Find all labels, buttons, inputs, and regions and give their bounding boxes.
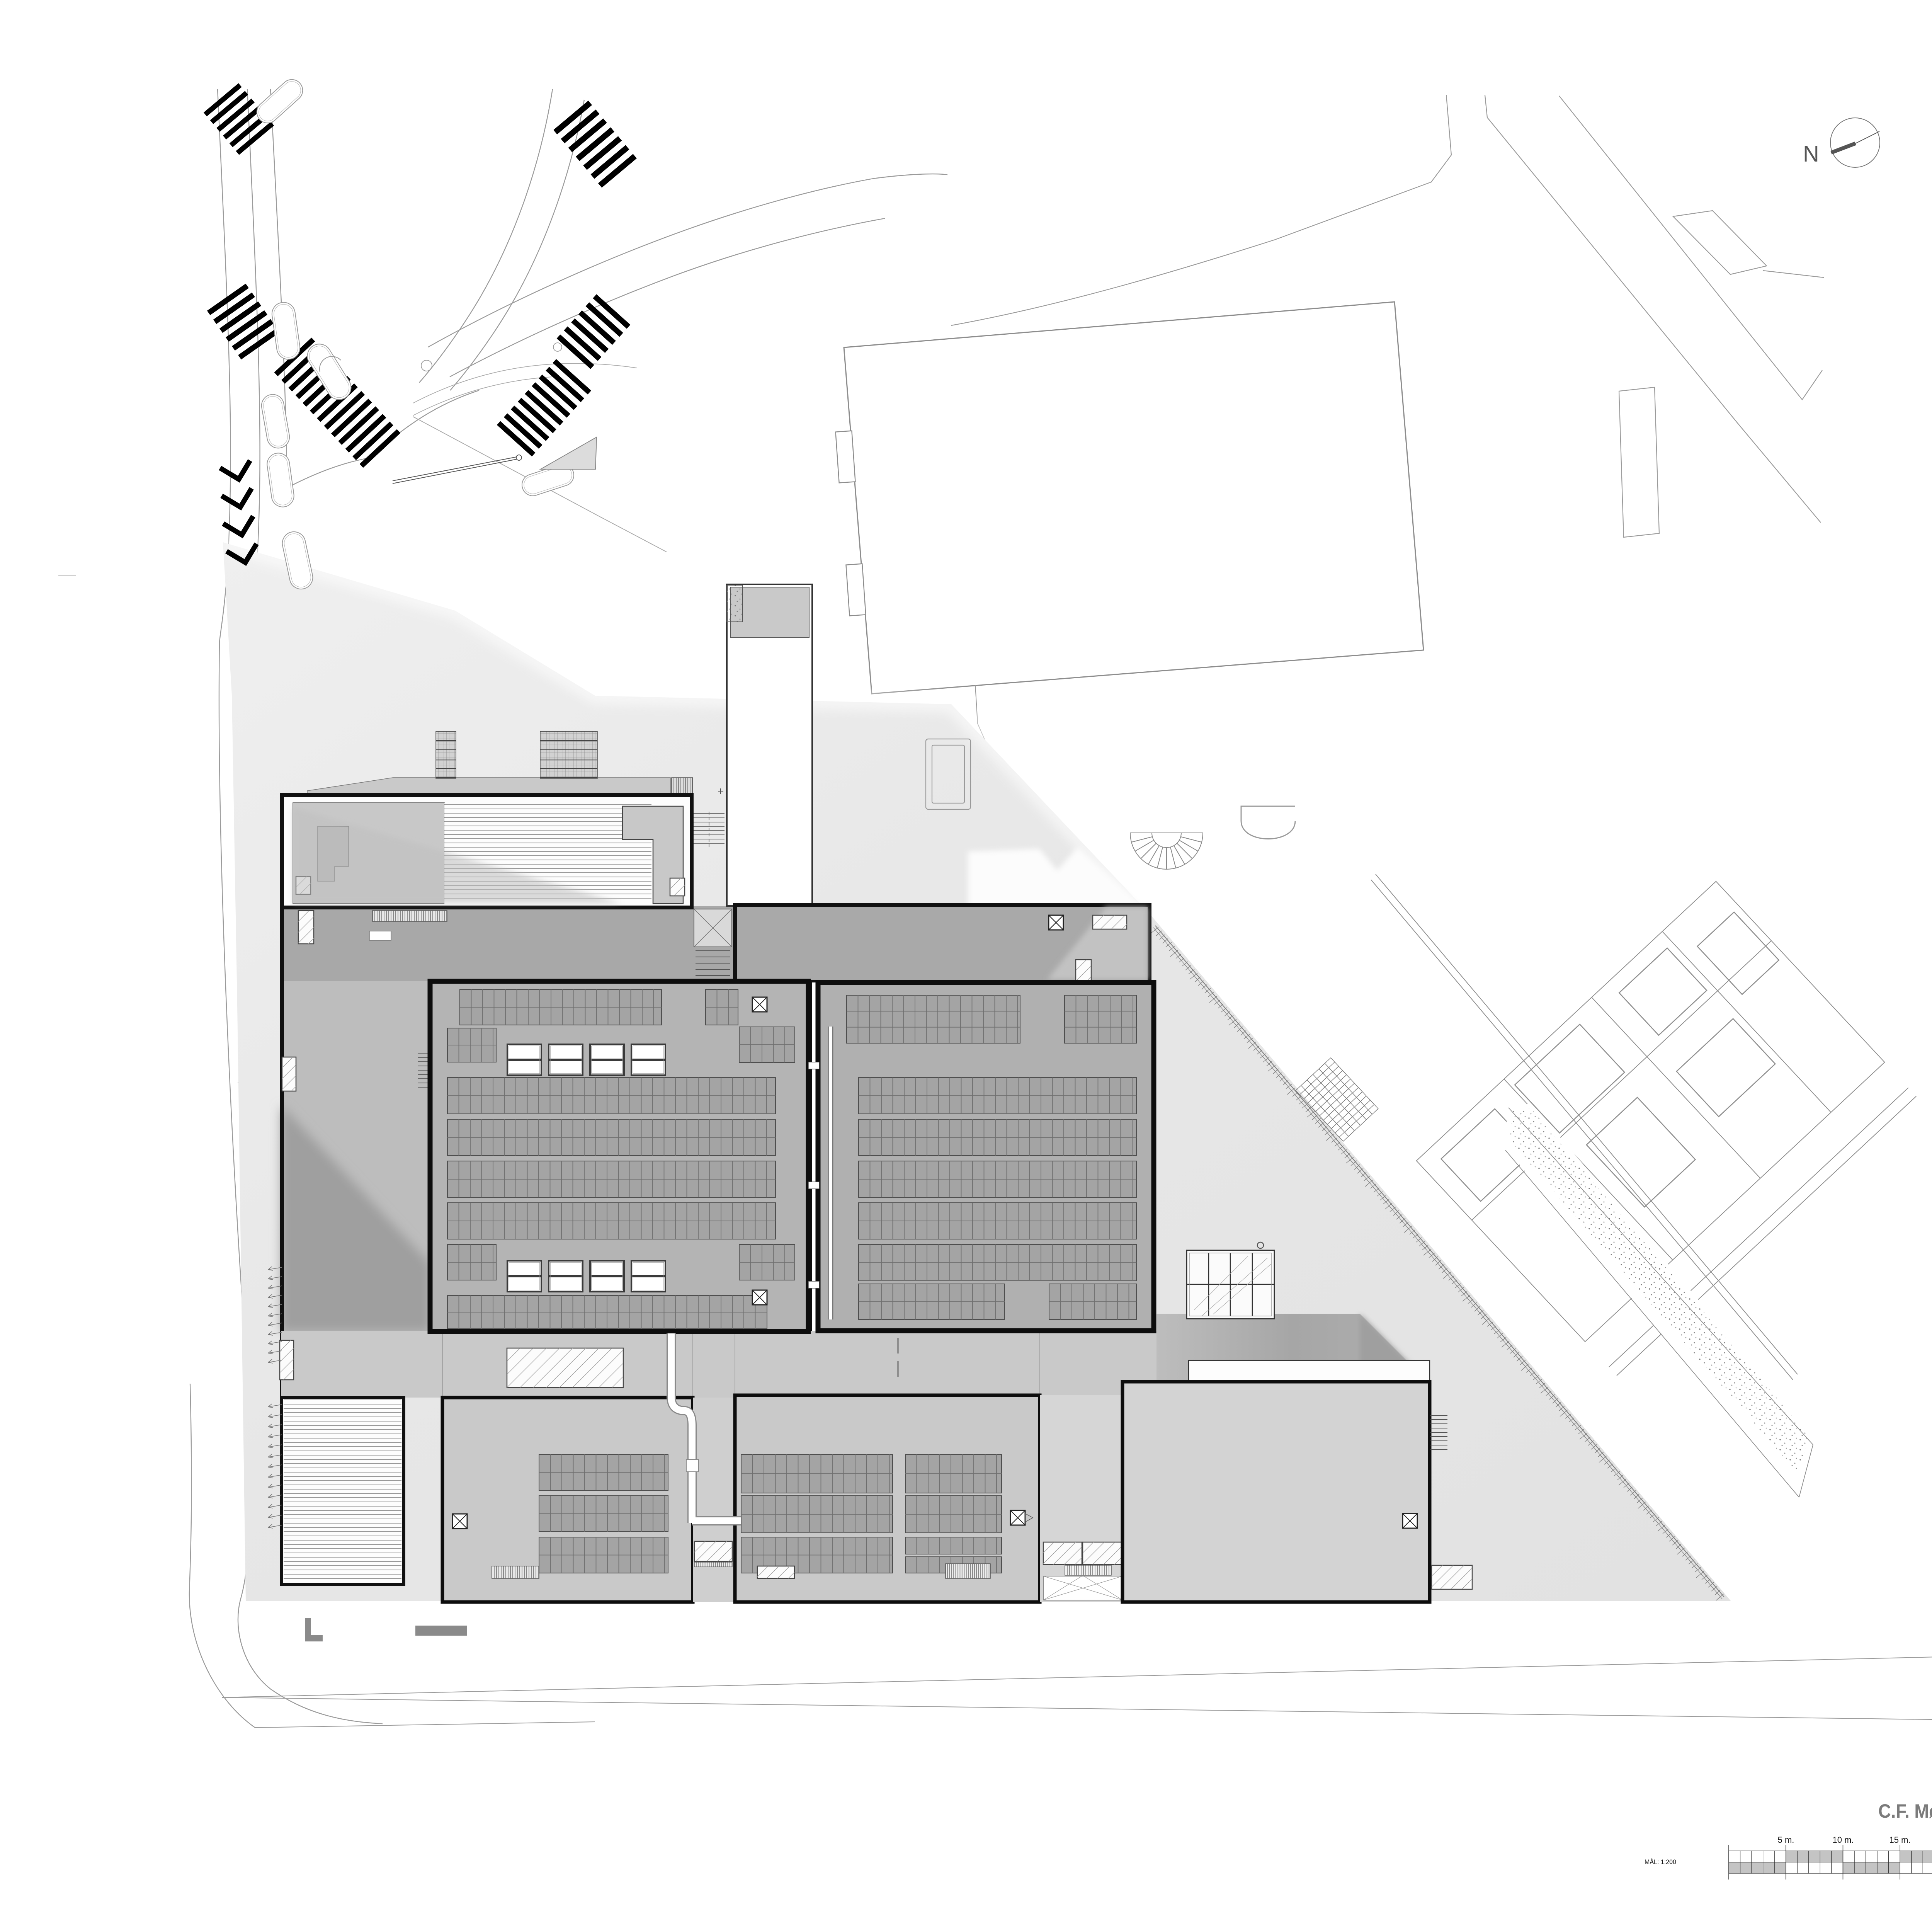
- svg-text:5 m.: 5 m.: [1778, 1835, 1794, 1845]
- svg-text:10 m.: 10 m.: [1832, 1835, 1854, 1845]
- svg-text:MÅL: 1:200: MÅL: 1:200: [1645, 1858, 1676, 1866]
- svg-text:15 m.: 15 m.: [1889, 1835, 1910, 1845]
- svg-text:C.F. Møller: C.F. Møller: [1878, 1800, 1932, 1822]
- svg-text:N: N: [1803, 141, 1819, 167]
